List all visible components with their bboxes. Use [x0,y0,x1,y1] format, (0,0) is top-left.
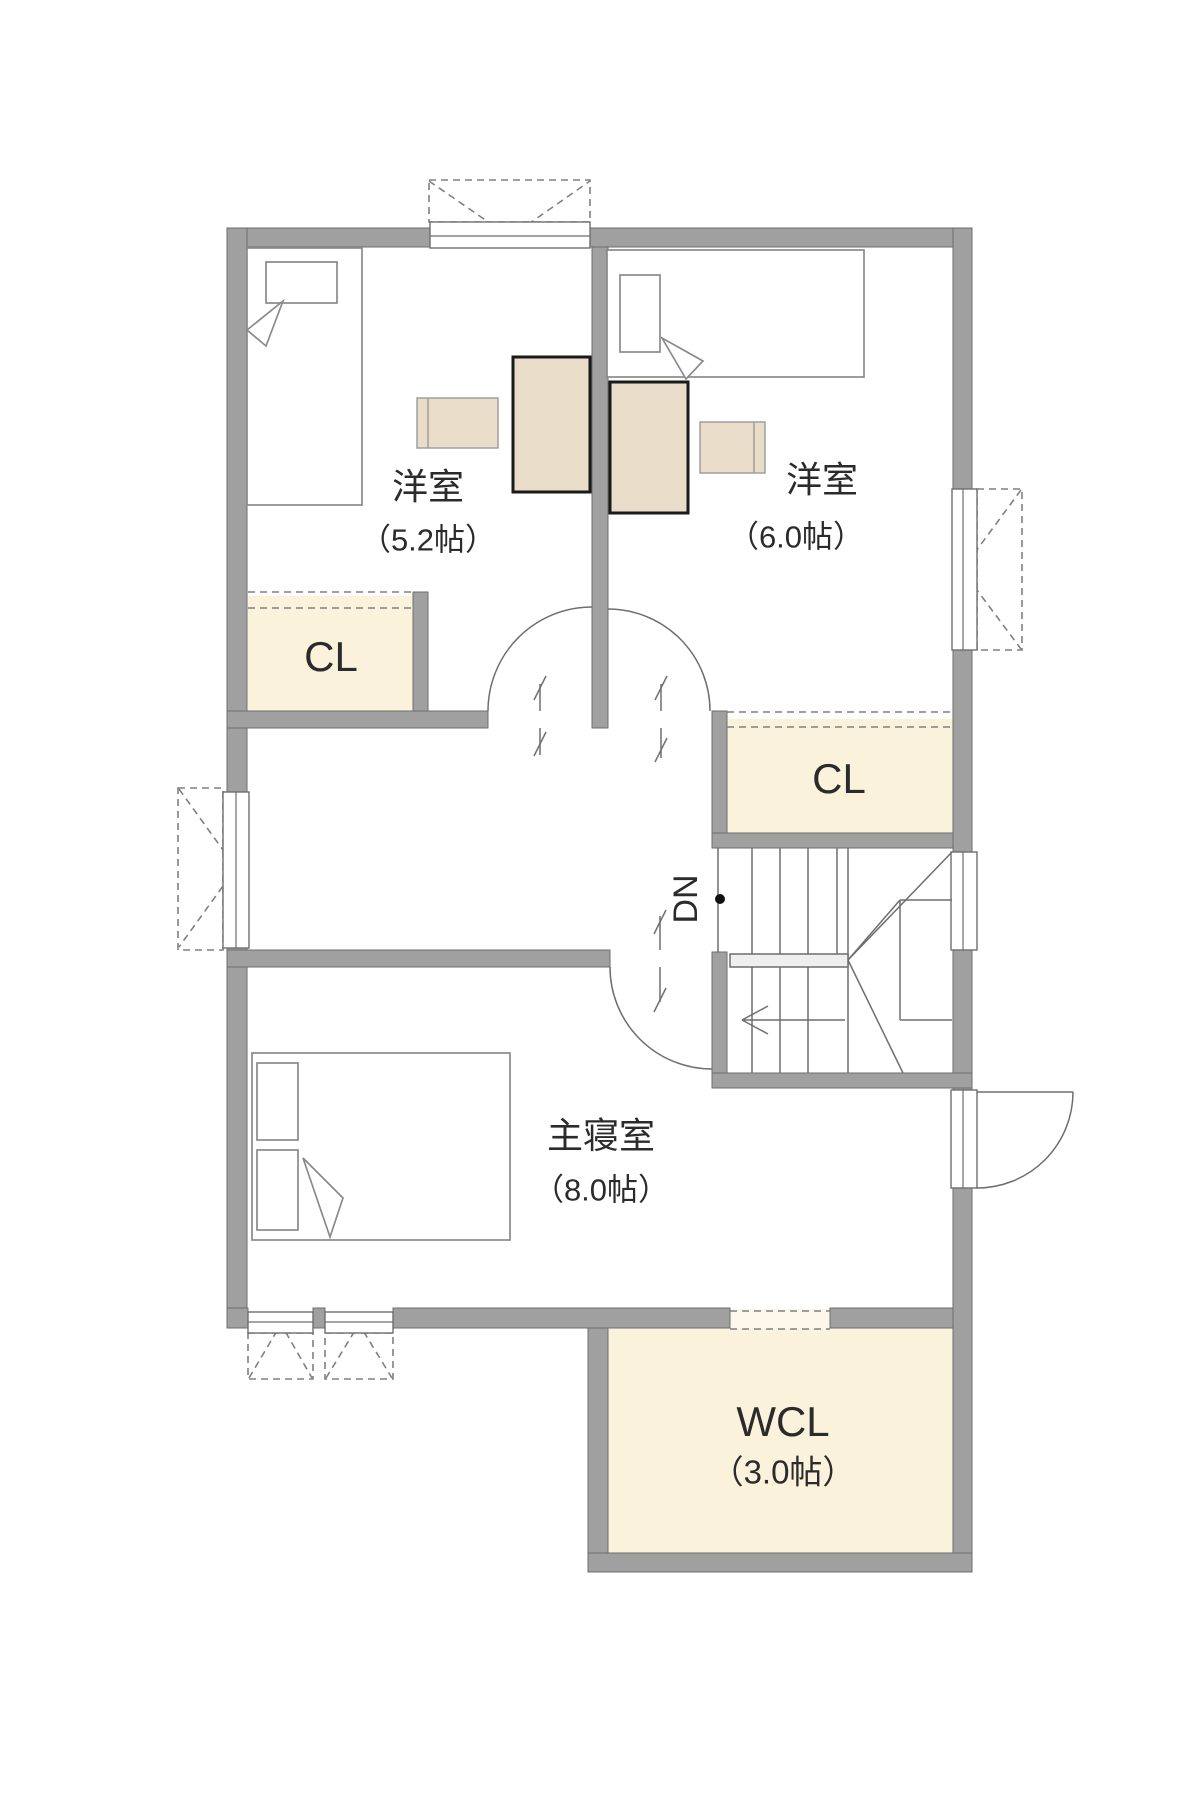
master-bedroom-size-label: （8.0帖） [533,1175,669,1206]
wall-right-3 [953,950,972,1090]
walk-in-closet-label: WCL [736,1401,829,1443]
wall-partition-bedrooms [592,247,608,728]
stairs-down-label: DN [669,874,703,923]
window-master-2-dashed-box [325,1333,393,1379]
wall-left-upper [227,228,247,792]
window-hall-dashed-box [178,788,223,950]
window-right-dashed-box [977,489,1022,650]
room-bedroom-2 [608,247,953,712]
bedroom-1-size-label: （5.2帖） [360,525,496,556]
wall-closet-right-side [712,711,727,848]
window-top-dashed-box [429,180,590,222]
window-master-1-dashed-box [248,1333,313,1379]
wall-master-bottom-1 [227,1308,248,1328]
wall-top-right [590,228,972,247]
wall-master-bottom-3 [393,1308,730,1328]
wall-wcl-left [588,1328,608,1572]
door-master-right-frame [951,1090,977,1188]
wall-wcl-bottom [588,1553,972,1572]
wall-closet-right-bottom [712,833,953,848]
window-stair-right [951,852,977,950]
master-bedroom-label: 主寝室 [547,1118,655,1154]
walk-in-closet-doorway [730,1309,830,1329]
wall-right-2 [953,650,972,852]
door-arc-master-right [977,1092,1073,1188]
closet-left-label: CL [304,636,358,678]
room-staircase [712,848,953,1088]
bedroom-2-label: 洋室 [786,462,858,498]
wall-hall-top-left [227,711,488,728]
wall-master-bottom-2 [313,1308,325,1328]
wall-right-1 [953,228,972,490]
bedroom-1-label: 洋室 [392,469,464,505]
room-hallway [247,728,712,950]
bedroom-2-size-label: （6.0帖） [728,522,864,553]
wall-right-4 [953,1188,972,1572]
window-top [430,222,590,248]
window-bedroom-2-right [952,489,977,650]
closet-right-label: CL [812,758,866,800]
walk-in-closet-size-label: （3.0帖） [711,1456,856,1489]
wall-left-lower [227,948,247,1328]
floor-plan: 洋室 （5.2帖） 洋室 （6.0帖） CL CL 主寝室 （8.0帖） WCL… [0,0,1200,1800]
wall-top-left [227,228,430,247]
wall-master-bottom-4 [830,1308,953,1328]
wall-hall-master [227,950,610,967]
